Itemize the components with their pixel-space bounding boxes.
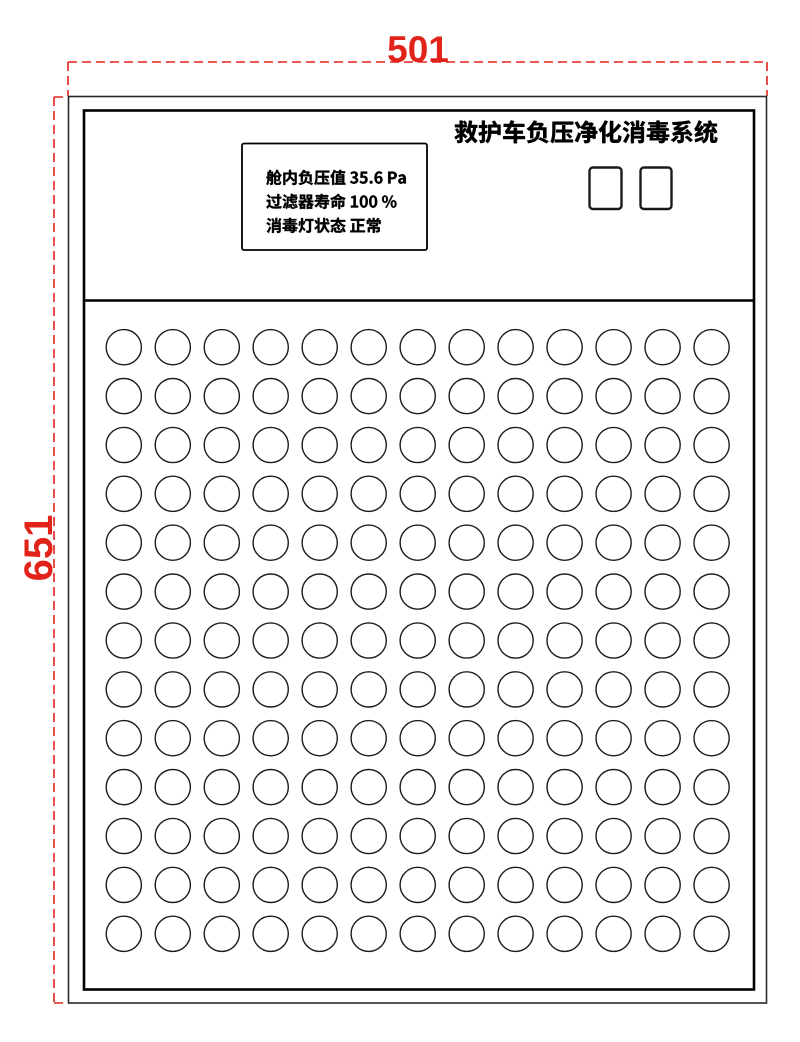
svg-text:651: 651 [17, 515, 61, 582]
svg-text:501: 501 [387, 29, 449, 70]
